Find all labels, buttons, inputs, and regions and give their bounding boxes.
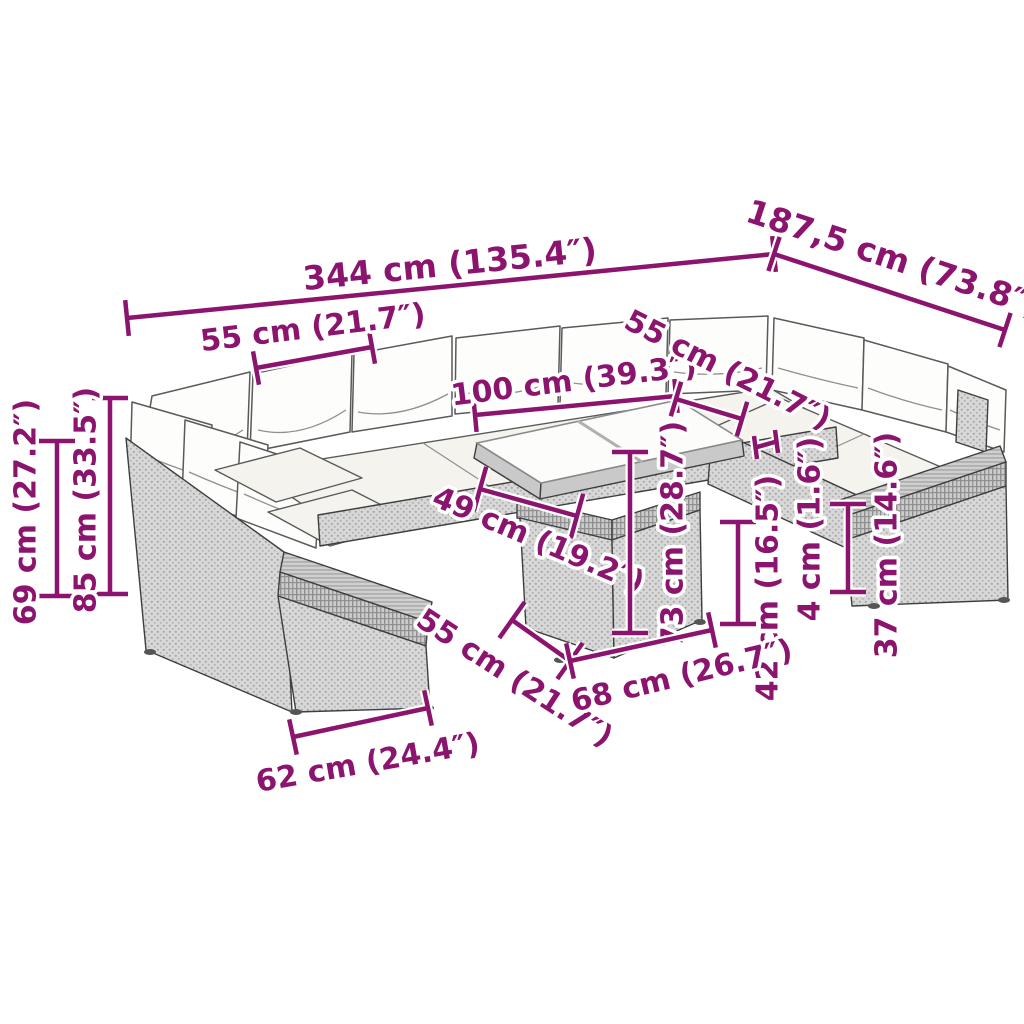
dim-label-69: 69 cm (27.2″) — [9, 399, 44, 626]
left-armrest — [278, 552, 432, 712]
dim-label-4: 4 cm (1.6″) — [793, 437, 828, 622]
dim-total-height-85: 85 cm (33.5″) — [69, 387, 129, 614]
rattan-back-post — [956, 390, 988, 452]
dimension-diagram: 344 cm (135.4″) 187,5 cm (73.8″) 55 cm (… — [0, 0, 1024, 1024]
dim-back-height-69: 69 cm (27.2″) — [9, 399, 76, 626]
back-pillow — [862, 340, 948, 432]
dim-label-37: 37 cm (14.6″) — [870, 432, 905, 659]
diagram-page: 344 cm (135.4″) 187,5 cm (73.8″) 55 cm (… — [0, 0, 1024, 1024]
dim-label-73: 73 cm (28.7″) — [656, 421, 691, 648]
dim-label-85: 85 cm (33.5″) — [69, 387, 104, 614]
dim-label-62: 62 cm (24.4″) — [253, 726, 482, 800]
